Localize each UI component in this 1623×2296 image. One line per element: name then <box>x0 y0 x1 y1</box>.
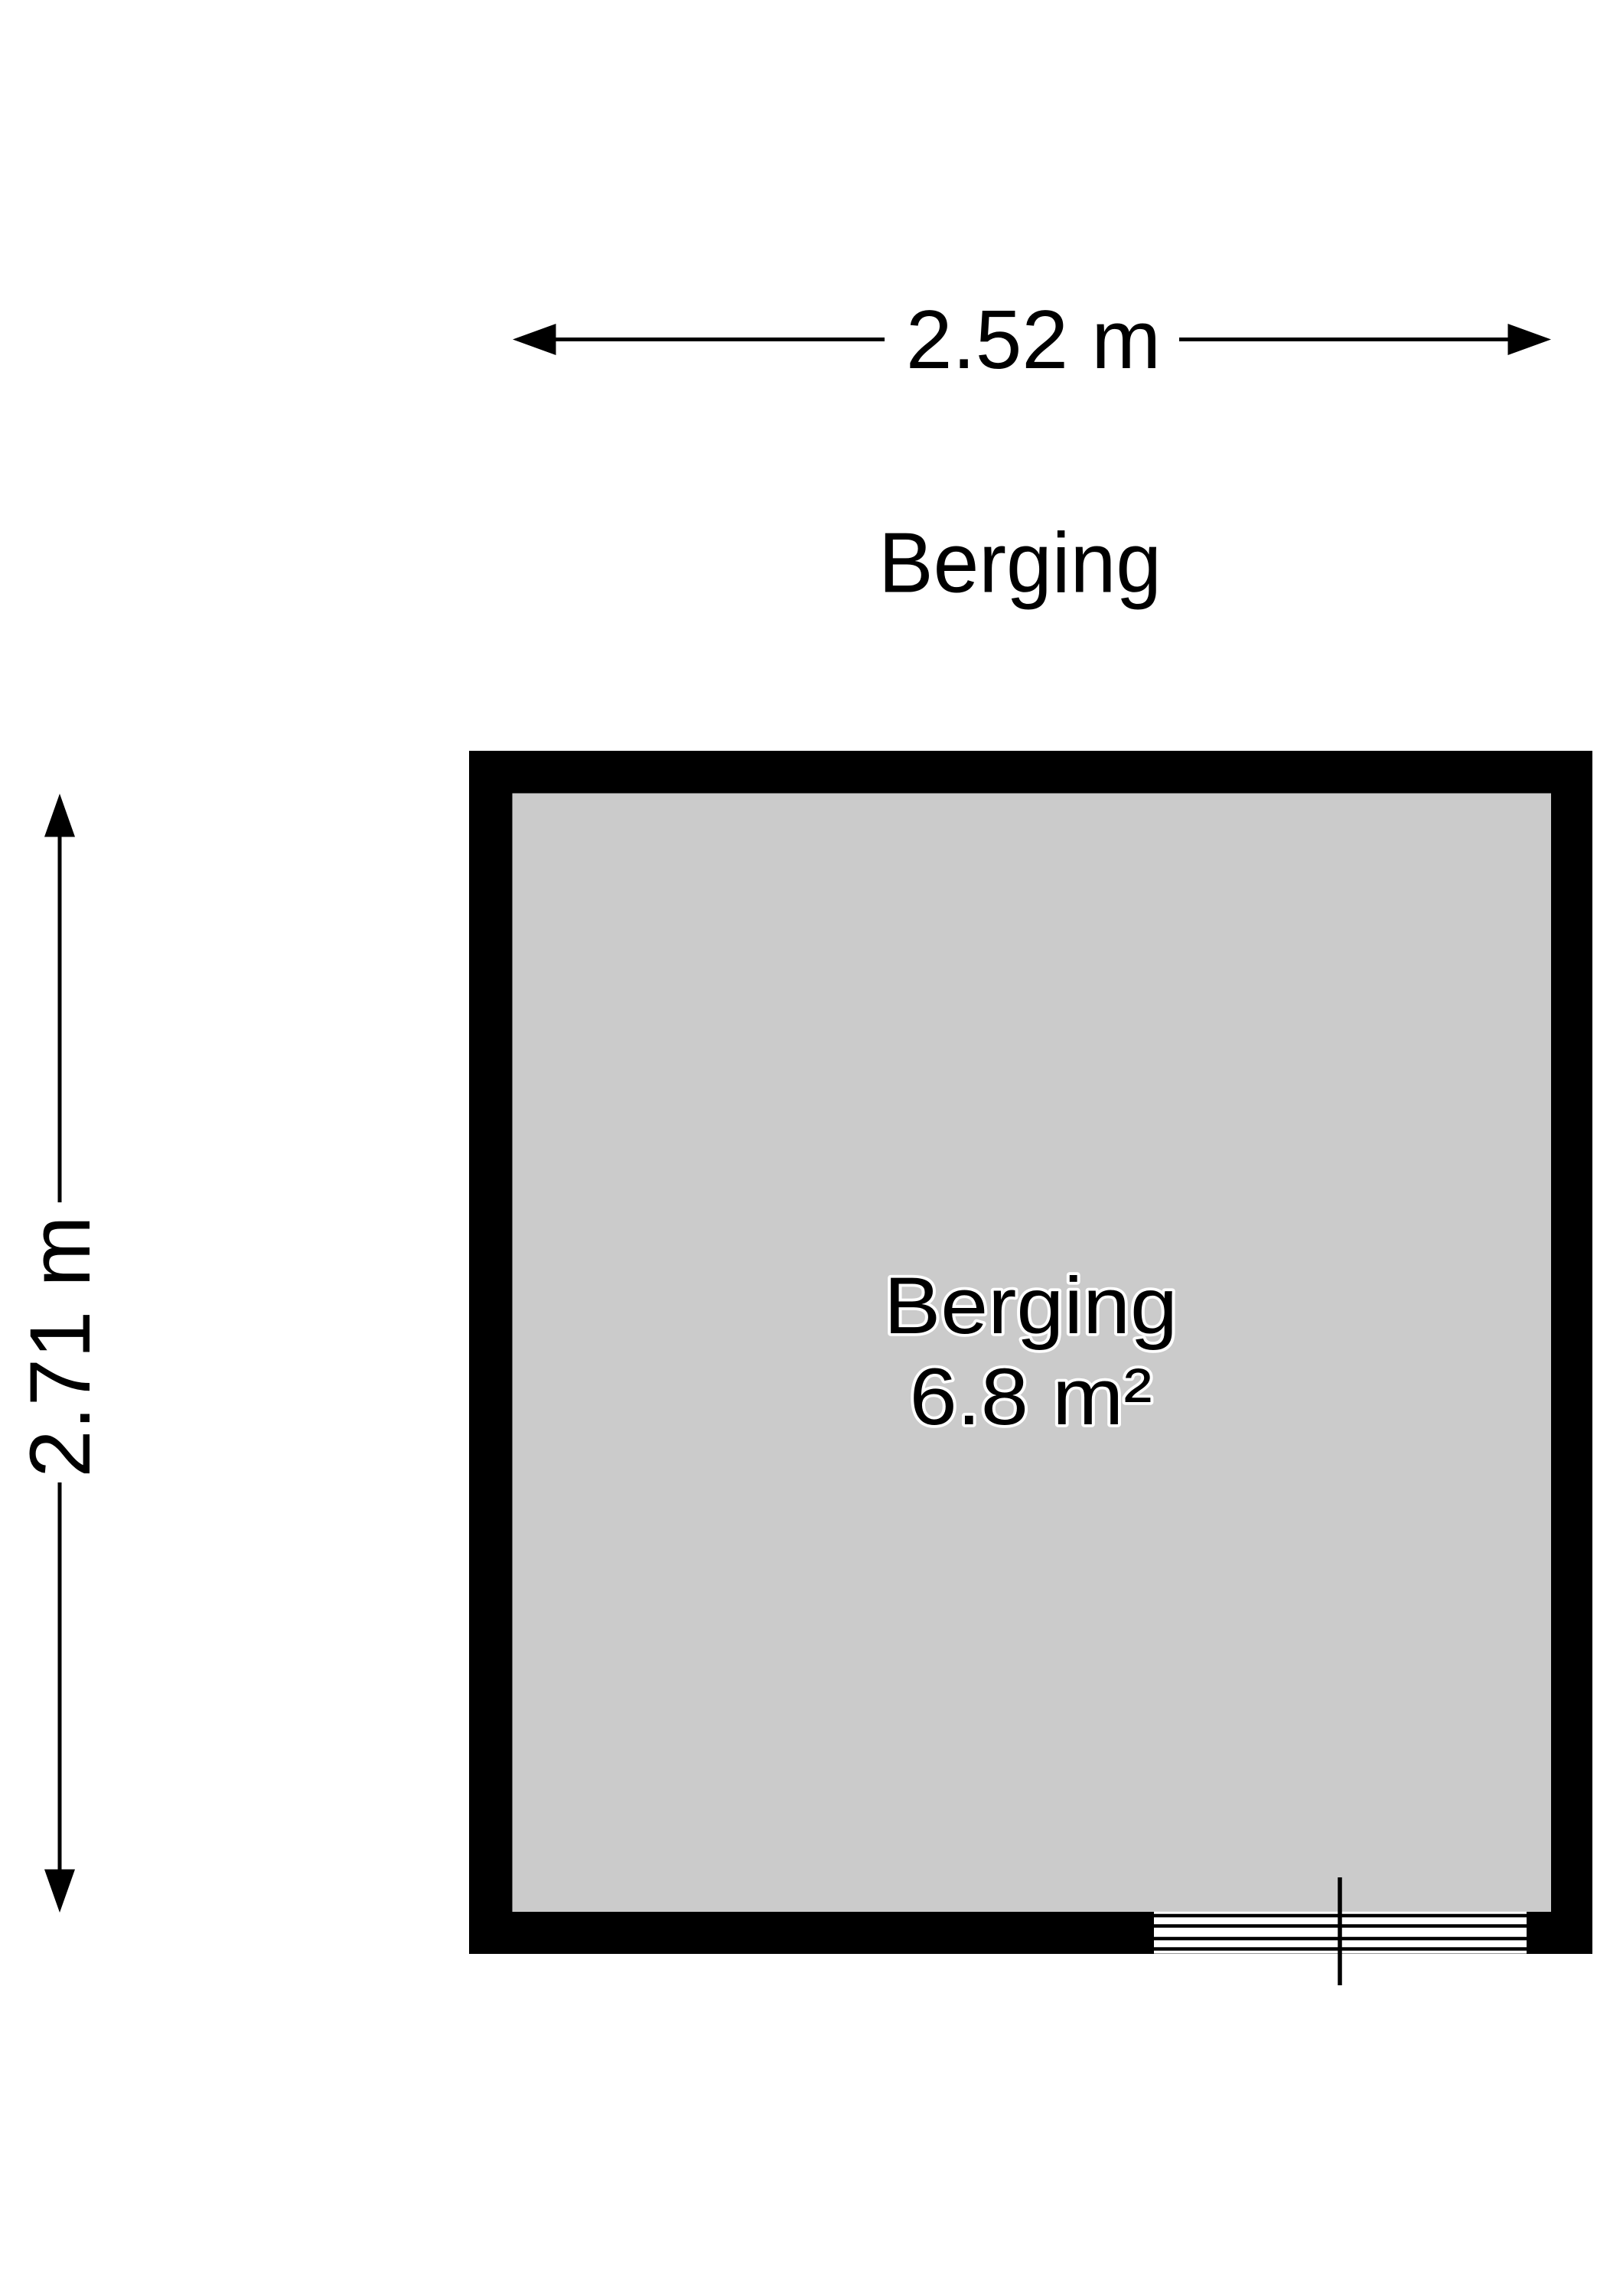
svg-text:Berging: Berging <box>878 516 1162 611</box>
svg-text:6.8 m²: 6.8 m² <box>910 1352 1152 1442</box>
svg-text:2.71 m: 2.71 m <box>12 1215 108 1477</box>
svg-text:2.52 m: 2.52 m <box>906 293 1161 386</box>
svg-text:Berging: Berging <box>884 1261 1178 1351</box>
